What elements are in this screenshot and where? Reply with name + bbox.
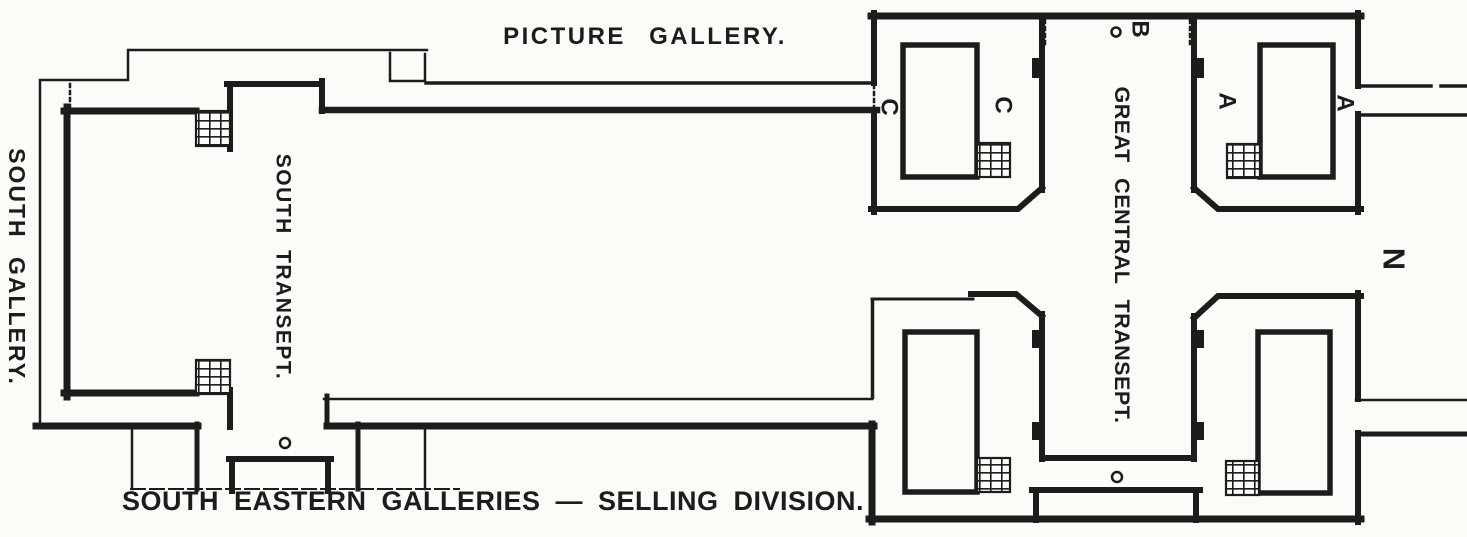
room-se-top-wall (1194, 296, 1361, 318)
transept-entrance-marker (280, 438, 290, 448)
room-c-court (903, 45, 977, 177)
great-central-transept-label: GREAT CENTRAL TRANSEPT. (1110, 87, 1134, 424)
south-eastern-galleries-label: SOUTH EASTERN GALLERIES — SELLING DIVISI… (122, 486, 864, 516)
room-se-court (1258, 332, 1330, 493)
stairs-icon (196, 360, 230, 394)
boundary-notch (390, 53, 425, 81)
room-se-pilaster (1194, 330, 1204, 348)
room-sw-pilaster (1032, 422, 1042, 440)
transept-north-bay-wall (227, 81, 322, 149)
room-marker-c-outer: C (876, 98, 903, 115)
stairs-icon (1226, 461, 1259, 495)
room-marker-c-inner: C (990, 96, 1017, 113)
plan-labels: PICTURE GALLERY. SOUTH GALLERY. SOUTH TR… (4, 20, 1412, 516)
entrance-b-marker (1112, 28, 1121, 37)
room-sw-top-wall (971, 294, 1042, 316)
south-gallery-label: SOUTH GALLERY. (4, 148, 30, 386)
room-c-pilaster (1032, 58, 1042, 78)
room-marker-a-inner: A (1214, 92, 1241, 109)
room-sw-pilaster (1032, 330, 1042, 348)
room-sw-court (905, 332, 977, 492)
south-passage-marker (1112, 472, 1122, 482)
room-a-pilaster (1194, 58, 1204, 78)
room-marker-a-outer: A (1332, 94, 1359, 111)
floor-plan-svg: PICTURE GALLERY. SOUTH GALLERY. SOUTH TR… (0, 0, 1467, 537)
picture-gallery-label: PICTURE GALLERY. (503, 23, 787, 50)
stairs-icon (977, 143, 1010, 177)
entrance-marker-b: B (1127, 20, 1154, 37)
left-section (36, 50, 877, 491)
room-c-bottom-wall (871, 188, 1042, 209)
room-a-court (1260, 45, 1333, 177)
floor-plan-page: PICTURE GALLERY. SOUTH GALLERY. SOUTH TR… (0, 0, 1467, 537)
compass-north-letter: N (1377, 248, 1412, 270)
stairs-icon (1227, 144, 1260, 178)
room-a-bottom-wall (1194, 188, 1361, 209)
outer-boundary-west-wall (40, 50, 427, 424)
room-se-pilaster (1194, 422, 1204, 440)
stairs-icon (196, 111, 230, 146)
south-transept-label: SOUTH TRANSEPT. (272, 154, 295, 381)
stairs-icon (977, 458, 1010, 492)
south-corridor-thin-wall (324, 299, 872, 399)
